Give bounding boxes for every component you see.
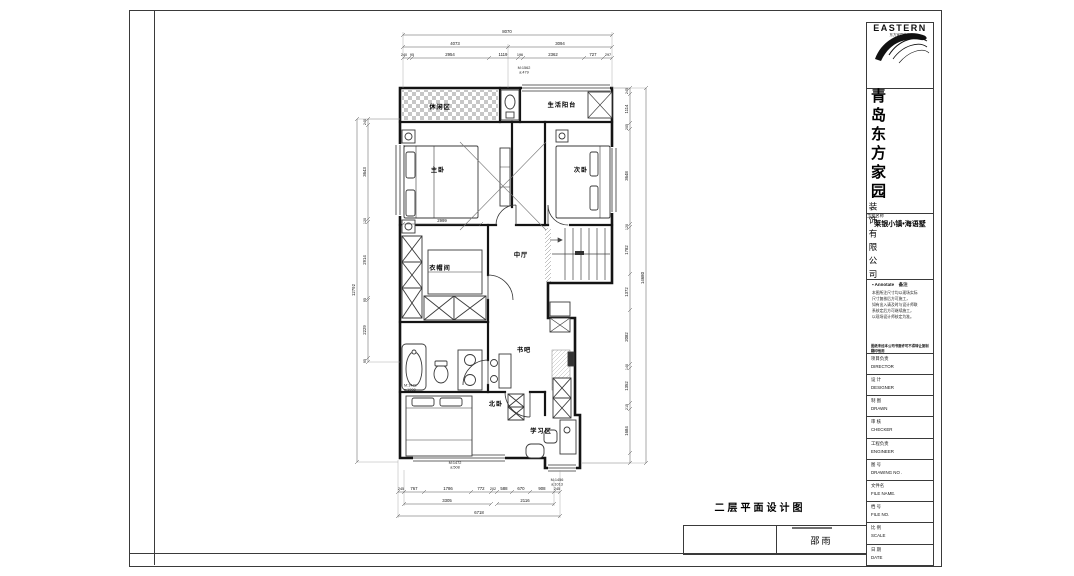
drawing-sheet: 8070 4073 3094 240 95 2954 1119 196 2362… — [0, 0, 1074, 576]
row-label-en: FILE NO. — [871, 512, 889, 517]
row-label-en: ENGINEER — [871, 449, 894, 454]
svg-text:M:1456: M:1456 — [551, 478, 564, 482]
row-label-en: DRAWN — [871, 406, 887, 411]
row-label-cn: 制 图 — [871, 398, 881, 404]
eastern-logo-icon — [869, 25, 931, 67]
svg-text:120: 120 — [363, 218, 367, 224]
svg-text:95: 95 — [363, 298, 367, 302]
titleblock-row-checker: 审 核 CHECKER — [867, 416, 933, 438]
stamp-box: 邵雨 — [683, 525, 868, 555]
svg-text:a:1013: a:1013 — [551, 483, 563, 487]
annotate-note-3: 如有出入请及时与设计师联 — [872, 303, 930, 309]
svg-text:4073: 4073 — [450, 41, 460, 46]
toilet — [434, 365, 448, 383]
row-label-en: CHECKER — [871, 427, 892, 432]
svg-text:240: 240 — [401, 53, 407, 57]
company-name-main: 青岛东方家园 — [867, 88, 888, 202]
room-label-master: 主卧 — [431, 166, 445, 174]
row-label-en: FILE NAME. — [871, 491, 895, 496]
svg-text:M:1562: M:1562 — [518, 66, 531, 70]
row-label-cn: 项目负责 — [871, 356, 889, 362]
cloakroom-wardrobe — [402, 236, 486, 320]
row-label-en: SCALE — [871, 533, 885, 538]
room-label-cloak: 衣帽间 — [429, 264, 451, 272]
row-label-cn: 图 号 — [871, 462, 881, 468]
titleblock-row-file-no: 档 号 FILE NO. — [867, 501, 933, 523]
wall-hatch-strip — [545, 228, 551, 282]
svg-text:196: 196 — [517, 53, 523, 57]
row-label-cn: 日 期 — [871, 547, 881, 553]
room-label-leisure: 休闲区 — [428, 103, 451, 111]
title-block: EASTERN 东方家园装饰 青岛东方家园 装饰有限公司 工程名称 莱银小镇•海… — [866, 22, 934, 566]
titleblock-row-designer: 设 计 DESIGNER — [867, 374, 933, 396]
study-desk — [560, 420, 576, 454]
row-label-en: DESIGNER — [871, 385, 894, 390]
svg-text:3648: 3648 — [624, 171, 629, 181]
row-label-cn: 比 例 — [871, 525, 881, 531]
second-bed — [556, 146, 610, 218]
svg-text:245: 245 — [398, 487, 404, 491]
titleblock-row-file-name: 文件名 FILE NAME. — [867, 480, 933, 502]
svg-text:240: 240 — [363, 119, 367, 125]
svg-text:297: 297 — [605, 53, 611, 57]
row-label-en: DIRECTOR — [871, 364, 894, 369]
svg-text:1786: 1786 — [443, 486, 453, 491]
svg-text:120: 120 — [625, 224, 629, 230]
floor-plan: 8070 4073 3094 240 95 2954 1119 196 2362… — [340, 25, 680, 525]
svg-text:2954: 2954 — [445, 52, 455, 57]
svg-text:M:1472: M:1472 — [404, 384, 417, 388]
titleblock-row-drawn: 制 图 DRAWN — [867, 395, 933, 417]
svg-text:727: 727 — [589, 52, 597, 57]
svg-text:2999: 2999 — [437, 218, 447, 223]
svg-text:3305: 3305 — [442, 498, 452, 503]
svg-text:1684: 1684 — [624, 426, 629, 436]
svg-text:588: 588 — [500, 486, 508, 491]
svg-text:1782: 1782 — [624, 245, 629, 255]
svg-text:6718: 6718 — [474, 510, 484, 515]
svg-text:a:479: a:479 — [519, 71, 529, 75]
svg-text:1372: 1372 — [624, 287, 629, 297]
staircase — [550, 228, 610, 280]
row-label-cn: 工程负责 — [871, 441, 889, 447]
annotate-note-4: 系核定后方可继续施工， — [872, 309, 930, 315]
svg-text:1352: 1352 — [624, 381, 629, 391]
drawing-title: 二层平面设计图 — [690, 499, 830, 514]
annotate-header: ▪ Annotate 备注 — [872, 282, 908, 288]
svg-text:215: 215 — [625, 404, 629, 410]
annotate-note-1: 本图所注尺寸均以现场实际 — [872, 291, 930, 297]
logo-section: EASTERN 东方家园装饰 — [867, 23, 933, 89]
svg-text:3643: 3643 — [362, 167, 367, 177]
svg-text:1114: 1114 — [624, 104, 629, 114]
row-label-cn: 审 核 — [871, 419, 881, 425]
svg-text:670: 670 — [517, 486, 525, 491]
titleblock-row-scale: 比 例 SCALE — [867, 522, 933, 544]
svg-text:2229: 2229 — [362, 325, 367, 335]
annotate-section: ▪ Annotate 备注 本图所注尺寸均以现场实际 尺寸复核后方可施工， 如有… — [867, 279, 933, 354]
company-section: 青岛东方家园 装饰有限公司 — [867, 88, 933, 214]
titleblock-row-director: 项目负责 DIRECTOR — [867, 353, 933, 375]
room-label-balcony: 生活阳台 — [548, 101, 577, 109]
svg-text:3094: 3094 — [555, 41, 565, 46]
svg-text:12792: 12792 — [351, 283, 356, 296]
svg-text:M:1472: M:1472 — [449, 461, 462, 465]
svg-text:1119: 1119 — [499, 52, 509, 57]
room-label-north: 北卧 — [489, 400, 503, 408]
svg-text:8070: 8070 — [502, 29, 512, 34]
svg-text:95: 95 — [410, 53, 414, 57]
master-dresser — [500, 148, 510, 206]
titleblock-row-drawing-no: 图 号 DRAWING NO . — [867, 459, 933, 481]
annotate-note-2: 尺寸复核后方可施工， — [872, 297, 930, 303]
row-label-en: DATE — [871, 555, 882, 560]
room-label-hall: 中厅 — [514, 251, 528, 259]
stamp-name: 邵雨 — [776, 526, 867, 554]
svg-text:14680: 14680 — [640, 271, 645, 284]
svg-text:2116: 2116 — [520, 498, 530, 503]
room-label-second: 次卧 — [574, 166, 588, 174]
svg-text:a:508: a:508 — [450, 466, 460, 470]
svg-text:2914: 2914 — [362, 255, 367, 265]
room-label-bookbar: 书吧 — [517, 346, 531, 354]
svg-text:767: 767 — [410, 486, 418, 491]
row-label-cn: 文件名 — [871, 483, 884, 489]
titleblock-row-engineer: 工程负责 ENGINEER — [867, 438, 933, 460]
svg-text:140: 140 — [625, 364, 629, 370]
svg-text:205: 205 — [625, 124, 629, 130]
room-label-study: 学习区 — [530, 427, 552, 435]
svg-text:908: 908 — [538, 486, 546, 491]
svg-text:245: 245 — [625, 88, 629, 94]
row-label-cn: 设 计 — [871, 377, 881, 383]
svg-text:a:1008: a:1008 — [404, 388, 416, 392]
row-label-en: DRAWING NO . — [871, 470, 902, 475]
annotate-note-5: 以现场设计师核定为准。 — [872, 315, 930, 321]
svg-text:2082: 2082 — [624, 332, 629, 342]
project-section: 工程名称 莱银小镇•海语墅 — [867, 213, 933, 280]
annotate-footer: 图纸未经本公司书面许可不得转让复制翻印他用 — [871, 343, 931, 353]
titleblock-row-date: 日 期 DATE — [867, 544, 933, 566]
svg-text:772: 772 — [477, 486, 485, 491]
svg-text:202: 202 — [490, 487, 496, 491]
svg-text:245: 245 — [554, 487, 560, 491]
row-label-cn: 档 号 — [871, 504, 881, 510]
project-name: 莱银小镇•海语墅 — [867, 219, 933, 229]
svg-text:2362: 2362 — [548, 52, 558, 57]
svg-text:95: 95 — [363, 359, 367, 363]
sheet-inner-left-border — [154, 10, 155, 565]
